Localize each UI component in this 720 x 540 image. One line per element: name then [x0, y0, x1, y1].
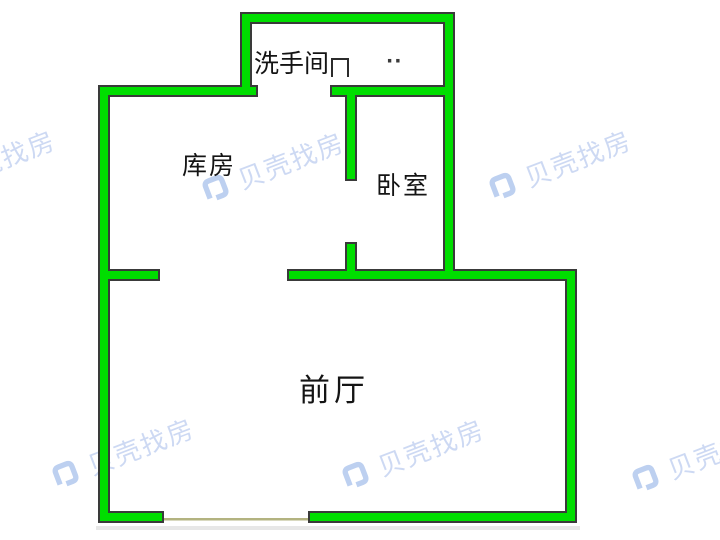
room-label-front-hall: 前厅: [299, 375, 369, 406]
walls-fill: [100, 14, 575, 521]
room-label-bedroom: 卧室: [376, 174, 430, 199]
door-threshold-line: [164, 518, 308, 521]
room-label-bathroom: 洗手间: [254, 52, 329, 77]
floorplan-walls: [0, 0, 720, 540]
wall-shadow: [96, 526, 580, 530]
double-dot-marker: ··: [386, 52, 402, 71]
room-label-storage: 库房: [182, 154, 236, 179]
floorplan: 贝壳找房 贝壳找房 贝壳找房 贝壳找房 贝壳找房 贝壳找房: [0, 0, 720, 540]
door-frame-icon: [331, 58, 349, 77]
